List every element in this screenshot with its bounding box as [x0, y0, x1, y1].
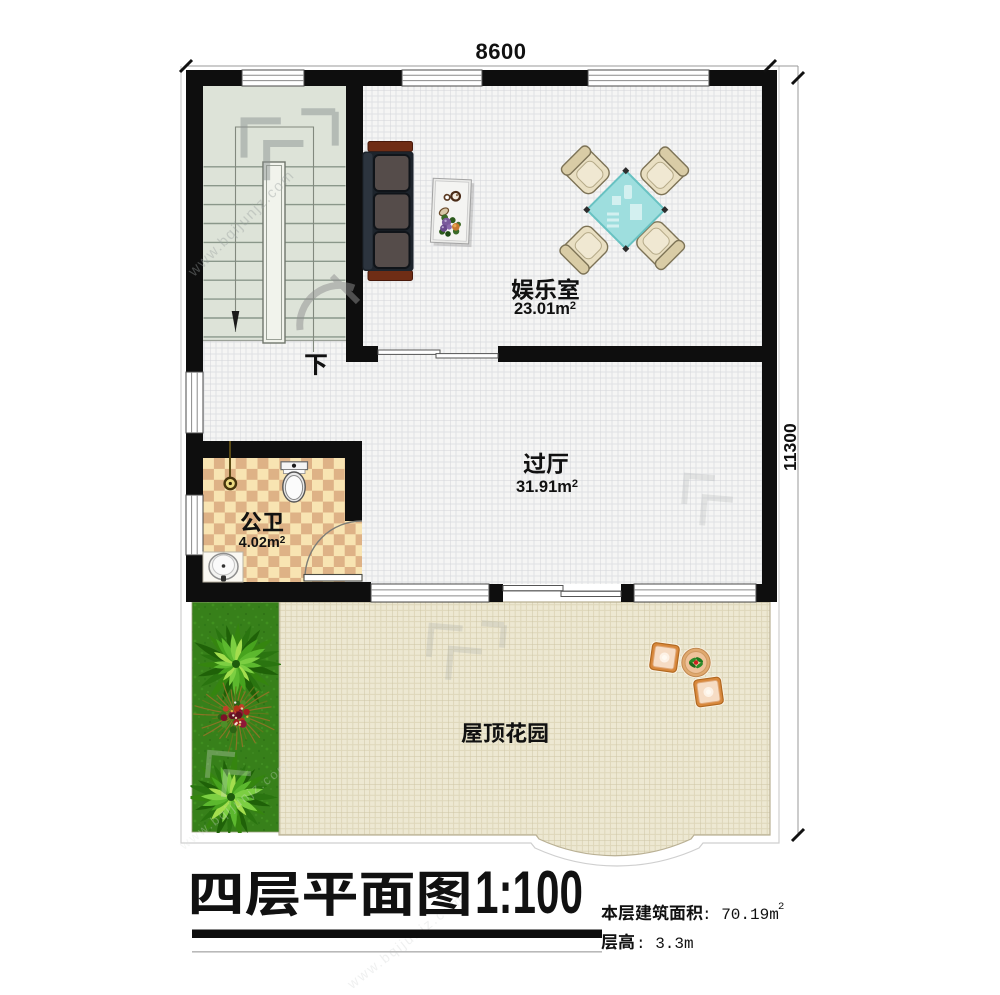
svg-text:1:100: 1:100: [475, 859, 583, 926]
svg-text:2: 2: [778, 901, 784, 913]
svg-text:31.91m2: 31.91m2: [516, 478, 578, 496]
svg-text:11300: 11300: [780, 423, 800, 471]
svg-text:4.02m2: 4.02m2: [239, 535, 286, 551]
svg-text:8600: 8600: [476, 39, 527, 64]
svg-text:: 3.3m: : 3.3m: [636, 935, 694, 953]
svg-text:: 70.19m: : 70.19m: [702, 906, 779, 924]
svg-text:23.01m2: 23.01m2: [514, 300, 576, 318]
